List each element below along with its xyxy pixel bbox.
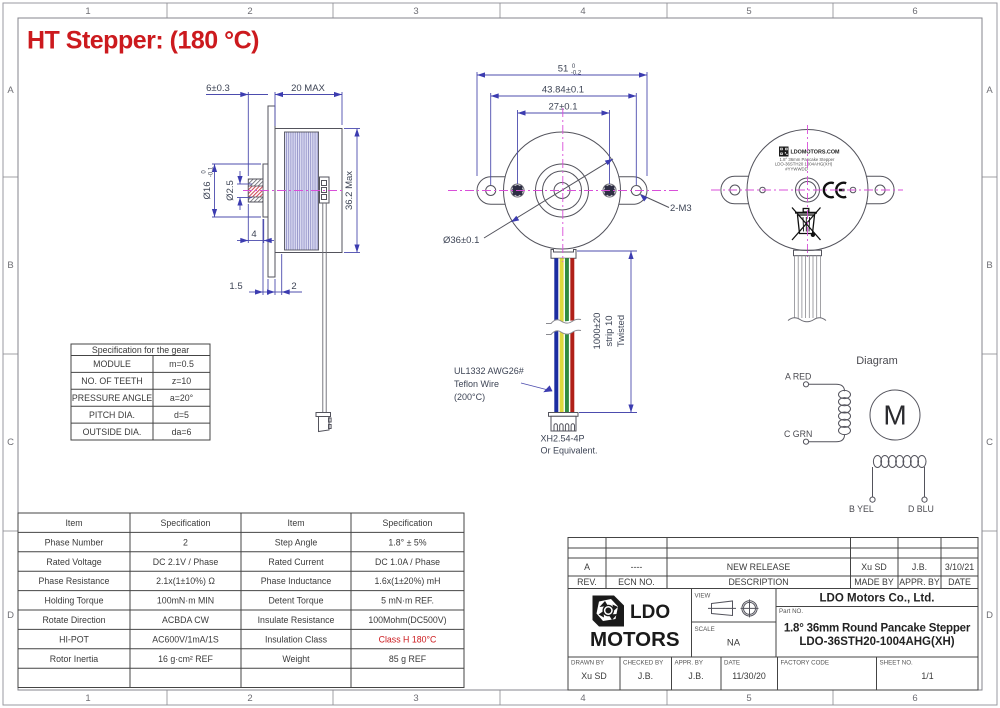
svg-text:LDO: LDO [630,602,670,623]
svg-text:AC600V/1mA/1S: AC600V/1mA/1S [152,634,219,644]
svg-text:PRESSURE ANGLE: PRESSURE ANGLE [72,393,152,403]
svg-text:1.6x(1±20%) mH: 1.6x(1±20%) mH [375,576,441,586]
svg-text:Rated Current: Rated Current [268,557,324,567]
svg-text:J.B.: J.B. [638,671,653,681]
svg-text:11/30/20: 11/30/20 [732,671,766,681]
svg-text:Phase Number: Phase Number [45,537,104,547]
svg-text:D BLU: D BLU [908,504,934,514]
svg-text:4: 4 [580,693,585,704]
svg-text:Weight: Weight [282,654,310,664]
svg-text:Or Equivalent.: Or Equivalent. [541,446,598,456]
svg-text:Phase Inductance: Phase Inductance [261,576,332,586]
svg-text:PITCH DIA.: PITCH DIA. [89,410,135,420]
svg-text:Xu SD: Xu SD [861,562,886,572]
svg-text:Xu SD: Xu SD [581,671,606,681]
svg-text:HT Stepper: (180 °C): HT Stepper: (180 °C) [27,27,259,55]
svg-text:85 g REF: 85 g REF [389,654,427,664]
svg-text:1.8° 36mm Round Pancake Steppe: 1.8° 36mm Round Pancake Stepper [784,623,971,635]
svg-text:APPR. BY: APPR. BY [675,660,704,667]
svg-text:C: C [7,437,14,448]
svg-text:C GRN: C GRN [784,429,812,439]
svg-text:VIEW: VIEW [695,593,711,600]
svg-text:D: D [986,610,993,621]
svg-text:1: 1 [85,6,90,17]
svg-text:strip 10: strip 10 [604,315,615,346]
svg-text:UL1332 AWG26#: UL1332 AWG26# [454,366,524,376]
svg-text:5: 5 [746,693,751,704]
svg-text:1: 1 [85,693,90,704]
svg-text:NA: NA [727,638,741,649]
svg-text:43.84±0.1: 43.84±0.1 [542,85,584,96]
svg-text:A: A [7,85,14,96]
svg-text:REV.: REV. [577,577,597,587]
svg-text:Diagram: Diagram [856,355,898,367]
svg-text:1/1: 1/1 [921,671,933,681]
svg-text:A: A [986,85,993,96]
svg-text:CHECKED BY: CHECKED BY [623,660,663,667]
svg-text:DESCRIPTION: DESCRIPTION [728,577,788,587]
svg-text:HI-POT: HI-POT [59,634,89,644]
svg-text:Phase Resistance: Phase Resistance [39,576,110,586]
svg-text:3: 3 [413,693,418,704]
svg-text:da=6: da=6 [172,427,192,437]
svg-text:Specification: Specification [161,518,211,528]
svg-text:ECN NO.: ECN NO. [618,577,655,587]
svg-text:A: A [584,562,590,572]
svg-text:(200°C): (200°C) [454,392,485,402]
svg-text:DC 1.0A / Phase: DC 1.0A / Phase [375,557,440,567]
svg-text:Class H 180°C: Class H 180°C [379,634,437,644]
svg-text:51: 51 [558,64,569,75]
svg-text:5: 5 [746,6,751,17]
svg-text:D: D [7,610,14,621]
svg-text:B: B [986,260,992,271]
svg-text:FACTORY CODE: FACTORY CODE [781,660,829,667]
svg-text:Specification for the gear: Specification for the gear [92,345,189,355]
svg-text:#YYWWDD: #YYWWDD [785,166,807,171]
svg-text:NEW RELEASE: NEW RELEASE [727,562,791,572]
svg-text:1.8° ± 5%: 1.8° ± 5% [388,537,426,547]
svg-text:2: 2 [247,6,252,17]
svg-text:LDO Motors Co., Ltd.: LDO Motors Co., Ltd. [820,593,935,605]
svg-text:4: 4 [251,229,256,240]
svg-text:Rotate Direction: Rotate Direction [42,615,105,625]
svg-text:SCALE: SCALE [695,626,715,633]
svg-text:MADE BY: MADE BY [854,577,894,587]
svg-text:LDOMOTORS.COM: LDOMOTORS.COM [791,150,841,156]
svg-text:100mN·m MIN: 100mN·m MIN [157,596,214,606]
svg-text:Item: Item [65,518,82,528]
svg-text:6±0.3: 6±0.3 [206,83,230,94]
svg-text:1.5: 1.5 [229,281,242,292]
svg-text:2.1x(1±10%) Ω: 2.1x(1±10%) Ω [156,576,215,586]
svg-text:3/10/21: 3/10/21 [945,562,974,572]
svg-text:DC 2.1V / Phase: DC 2.1V / Phase [153,557,219,567]
svg-text:Rated Voltage: Rated Voltage [46,557,101,567]
svg-text:-0.1: -0.1 [209,166,215,177]
svg-text:Teflon Wire: Teflon Wire [454,379,499,389]
svg-text:16 g·cm² REF: 16 g·cm² REF [158,654,213,664]
svg-text:6: 6 [912,6,917,17]
svg-text:A RED: A RED [785,372,811,382]
svg-text:OUTSIDE DIA.: OUTSIDE DIA. [83,427,142,437]
svg-text:3: 3 [413,6,418,17]
svg-text:Insulate Resistance: Insulate Resistance [258,615,335,625]
svg-text:20 MAX: 20 MAX [291,83,325,94]
svg-text:Detent Torque: Detent Torque [268,596,323,606]
svg-text:MODULE: MODULE [93,359,131,369]
svg-text:LDO-36STH20-1004AHG(XH): LDO-36STH20-1004AHG(XH) [799,636,954,648]
svg-text:Ø2.5: Ø2.5 [225,180,236,201]
svg-text:z=10: z=10 [172,376,191,386]
svg-text:a=20°: a=20° [170,393,193,403]
svg-text:B: B [7,260,13,271]
svg-text:5 mN·m REF.: 5 mN·m REF. [381,596,434,606]
svg-text:2: 2 [183,537,188,547]
svg-text:MOTORS: MOTORS [590,628,680,651]
svg-text:ACBDA CW: ACBDA CW [162,615,210,625]
svg-text:Step Angle: Step Angle [275,537,318,547]
svg-text:DRAWN BY: DRAWN BY [571,660,604,667]
svg-text:Item: Item [287,518,304,528]
svg-text:Part NO.: Part NO. [779,608,803,615]
svg-text:m=0.5: m=0.5 [169,359,194,369]
svg-text:d=5: d=5 [174,410,189,420]
svg-text:6: 6 [912,693,917,704]
svg-text:36.2 Max: 36.2 Max [344,171,355,210]
svg-text:SHEET NO.: SHEET NO. [880,660,914,667]
svg-text:M: M [883,400,906,431]
svg-text:DATE: DATE [948,577,971,587]
svg-text:B YEL: B YEL [849,504,874,514]
svg-text:Ø16: Ø16 [202,182,213,200]
svg-text:J.B.: J.B. [688,671,703,681]
svg-text:1000±20: 1000±20 [592,313,603,350]
svg-text:Ø36±0.1: Ø36±0.1 [443,235,479,246]
svg-text:100Mohm(DC500V): 100Mohm(DC500V) [368,615,446,625]
svg-text:-0.2: -0.2 [571,71,582,77]
svg-text:----: ---- [631,562,643,572]
svg-text:Insulation Class: Insulation Class [265,634,328,644]
svg-text:C: C [986,437,993,448]
svg-text:J.B.: J.B. [912,562,927,572]
svg-text:Twisted: Twisted [616,315,627,347]
svg-text:XH2.54-4P: XH2.54-4P [541,434,585,444]
svg-text:Specification: Specification [383,518,433,528]
svg-text:Holding Torque: Holding Torque [44,596,103,606]
svg-text:2-M3: 2-M3 [670,203,692,214]
svg-text:2: 2 [247,693,252,704]
svg-text:NO. OF TEETH: NO. OF TEETH [81,376,142,386]
svg-text:2: 2 [291,281,296,292]
svg-text:Rotor Inertia: Rotor Inertia [50,654,99,664]
svg-text:4: 4 [580,6,585,17]
svg-text:APPR. BY: APPR. BY [899,577,940,587]
svg-text:DATE: DATE [724,660,740,667]
